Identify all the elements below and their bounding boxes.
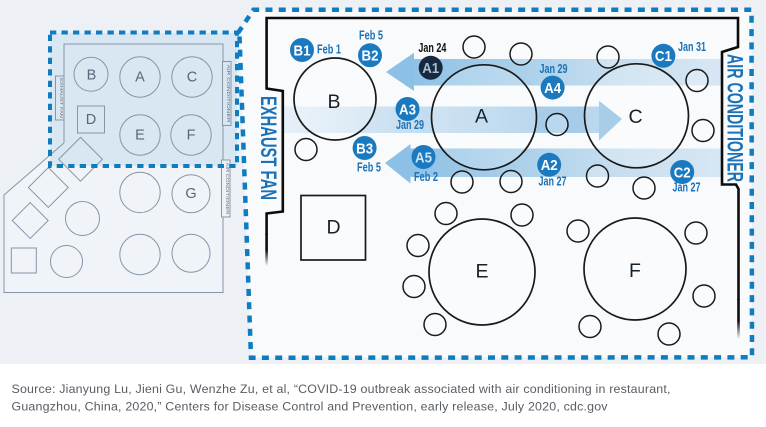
svg-text:Jan 31: Jan 31 [678, 39, 706, 54]
svg-text:C: C [628, 106, 642, 128]
svg-text:C1: C1 [655, 48, 672, 65]
svg-text:F: F [629, 260, 641, 282]
svg-text:C: C [187, 70, 197, 86]
svg-text:B: B [327, 91, 340, 113]
svg-text:A: A [475, 106, 488, 128]
svg-text:Jan 24: Jan 24 [418, 40, 447, 55]
svg-text:AIR CONDITIONER: AIR CONDITIONER [226, 65, 231, 123]
svg-text:F: F [187, 128, 196, 144]
svg-text:Guangzhou, China, 2020,” Cente: Guangzhou, China, 2020,” Centers for Dis… [12, 400, 609, 414]
svg-text:Feb 1: Feb 1 [317, 42, 341, 57]
svg-text:EXHAUST FAN: EXHAUST FAN [256, 96, 281, 200]
svg-text:A3: A3 [399, 101, 416, 118]
svg-text:A5: A5 [415, 149, 432, 166]
svg-text:Jan 29: Jan 29 [540, 61, 568, 76]
svg-text:Jan 27: Jan 27 [673, 180, 701, 195]
svg-text:E: E [135, 128, 145, 144]
svg-text:Feb 5: Feb 5 [357, 160, 381, 175]
svg-text:B3: B3 [356, 140, 373, 157]
svg-text:A2: A2 [541, 157, 558, 174]
svg-text:Source: Jianyung Lu, Jieni Gu,: Source: Jianyung Lu, Jieni Gu, Wenzhe Zu… [12, 382, 671, 396]
svg-text:EXHAUST FAN: EXHAUST FAN [59, 78, 64, 118]
svg-text:A: A [135, 70, 145, 86]
svg-text:Jan 29: Jan 29 [396, 117, 424, 132]
svg-text:A4: A4 [544, 80, 562, 97]
svg-text:AIR CONDITIONER: AIR CONDITIONER [225, 163, 230, 215]
svg-text:E: E [475, 261, 488, 283]
svg-text:D: D [86, 112, 96, 128]
svg-text:Feb 5: Feb 5 [359, 27, 383, 42]
svg-text:Feb 2: Feb 2 [414, 169, 438, 184]
svg-text:B1: B1 [294, 42, 311, 59]
svg-text:Jan 27: Jan 27 [539, 174, 567, 189]
svg-text:B: B [87, 68, 97, 84]
svg-text:A1: A1 [422, 60, 439, 77]
svg-text:D: D [326, 217, 340, 239]
svg-text:G: G [185, 186, 196, 202]
svg-text:B2: B2 [362, 48, 379, 65]
svg-text:AIR CONDITIONER: AIR CONDITIONER [723, 54, 748, 182]
